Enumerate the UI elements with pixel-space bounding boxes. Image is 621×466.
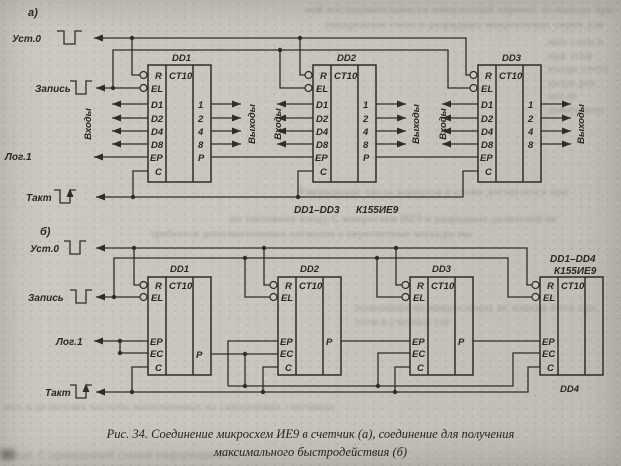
junction-dot xyxy=(375,256,379,260)
pin-label: D4 xyxy=(481,127,494,138)
junction-dot xyxy=(243,256,247,260)
junction-dot xyxy=(130,36,134,40)
inputs-label: Входы xyxy=(273,108,284,140)
part-range-label: DD1–DD4 xyxy=(550,254,596,265)
pin-label: D1 xyxy=(151,100,163,111)
chip-type-label: CT10 xyxy=(334,71,358,82)
pin-label: R xyxy=(547,281,554,292)
pin-label: EP xyxy=(480,153,493,164)
figure-34-schematic: а) xyxy=(0,0,621,466)
outputs-label: Выходы xyxy=(576,104,587,144)
chip-dd4-b: DD1–DD4 К155ИЕ9 DD4 CT10 R EL EP EC C xyxy=(532,254,603,395)
pin-label: R xyxy=(155,71,162,82)
pin-label: D8 xyxy=(481,140,494,151)
inversion-bubble xyxy=(270,282,277,289)
chip-type-label: CT10 xyxy=(169,281,193,292)
pin-label: 1 xyxy=(198,100,203,111)
pin-label: EP xyxy=(150,337,163,348)
diagram-b: б) xyxy=(28,226,603,399)
chip-dd1-b: DD1 CT10 R EL EP EC C P xyxy=(140,264,211,375)
pin-label: 2 xyxy=(197,114,204,125)
caption-line-1: Рис. 34. Соединение микросхем ИЕ9 в счет… xyxy=(0,425,621,443)
pin-label: 2 xyxy=(527,114,534,125)
pin-label: EP xyxy=(412,337,425,348)
pin-label: P xyxy=(458,337,465,348)
diagram-b-label: б) xyxy=(40,226,51,238)
pin-label: C xyxy=(320,167,327,178)
pin-label: C xyxy=(547,363,554,374)
figure-caption: Рис. 34. Соединение микросхем ИЕ9 в счет… xyxy=(0,425,621,461)
caption-line-2: максимального быстродействия (б) xyxy=(0,443,621,461)
pin-label: 1 xyxy=(528,100,533,111)
part-number-label: К155ИЕ9 xyxy=(356,205,399,216)
junction-dot xyxy=(111,86,115,90)
signal-label-log1: Лог.1 xyxy=(55,337,83,348)
inversion-bubble xyxy=(270,294,277,301)
entry-arrowheads-a xyxy=(94,35,105,201)
inversion-bubble xyxy=(140,85,147,92)
pin-label: EL xyxy=(316,84,328,95)
pin-label: D4 xyxy=(151,127,164,138)
junction-dot xyxy=(131,195,135,199)
chip-type-label: CT10 xyxy=(299,281,323,292)
signal-label-set0: Уст.0 xyxy=(12,34,41,45)
inversion-bubble xyxy=(305,72,312,79)
junction-dot xyxy=(298,36,302,40)
junction-dot xyxy=(132,246,136,250)
pin-label: D4 xyxy=(316,127,329,138)
signal-label-set0: Уст.0 xyxy=(30,244,59,255)
input-stubs-dd1-a xyxy=(112,104,148,144)
pin-label: 2 xyxy=(362,114,369,125)
part-number-label: К155ИЕ9 xyxy=(554,266,597,277)
junction-dot xyxy=(296,195,300,199)
chip-dividers xyxy=(331,65,358,182)
junction-dot xyxy=(262,246,266,250)
signal-label-write: Запись xyxy=(35,84,71,95)
pin-label: 8 xyxy=(198,140,204,151)
chip-designator: DD2 xyxy=(337,53,357,64)
pin-label: EC xyxy=(412,349,425,360)
junction-dot xyxy=(278,48,282,52)
pin-label: R xyxy=(417,281,424,292)
inversion-bubble xyxy=(140,294,147,301)
pin-label: EP xyxy=(280,337,293,348)
part-range-label: DD1–DD3 xyxy=(294,205,340,216)
diagram-a: а) xyxy=(4,7,587,216)
inputs-label: Входы xyxy=(83,108,94,140)
pin-label: R xyxy=(320,71,327,82)
pin-label: D8 xyxy=(151,140,164,151)
pin-label: R xyxy=(285,281,292,292)
pin-label: P xyxy=(363,153,370,164)
chip-designator: DD1 xyxy=(170,264,189,275)
pin-label: D2 xyxy=(316,114,329,125)
chip-designator: DD3 xyxy=(502,53,522,64)
pin-label: P xyxy=(196,350,203,361)
pin-label: EP xyxy=(150,153,163,164)
pin-label: 8 xyxy=(528,140,534,151)
net-write-a xyxy=(96,50,470,88)
output-stubs-dd3-a xyxy=(541,104,571,144)
pin-label: EL xyxy=(413,293,425,304)
inversion-bubble xyxy=(532,282,539,289)
inversion-bubble xyxy=(305,85,312,92)
inputs-label: Входы xyxy=(438,108,449,140)
entry-arrowheads-b xyxy=(94,245,105,396)
pin-label: EL xyxy=(543,293,555,304)
pulse-symbols-b xyxy=(64,241,92,398)
pin-label: EC xyxy=(542,349,555,360)
net-clock-a xyxy=(96,171,478,197)
signal-label-log1: Лог.1 xyxy=(4,152,32,163)
inversion-bubble xyxy=(140,282,147,289)
pin-label: C xyxy=(417,363,424,374)
inversion-bubble xyxy=(470,85,477,92)
pin-label: EP xyxy=(315,153,328,164)
chip-dd3-a: DD3 CT10 R EL D1 D2 D4 D8 EP C 1 2 4 8 xyxy=(470,53,541,182)
junction-dot xyxy=(243,384,247,388)
junction-dot xyxy=(243,352,247,356)
pin-label: 1 xyxy=(363,100,368,111)
inversion-bubble xyxy=(532,294,539,301)
pin-label: EC xyxy=(280,349,293,360)
chip-type-label: CT10 xyxy=(431,281,455,292)
signal-label-clock: Такт xyxy=(45,388,71,399)
junction-dot xyxy=(393,390,397,394)
junction-dot xyxy=(118,339,122,343)
junction-dot xyxy=(130,390,134,394)
pin-label: EP xyxy=(542,337,555,348)
junction-dot xyxy=(118,351,122,355)
pin-label: D2 xyxy=(481,114,494,125)
chip-dd2-a: DD2 CT10 R EL D1 D2 D4 D8 EP C 1 2 4 8 P xyxy=(305,53,376,182)
inversion-bubble xyxy=(140,72,147,79)
pin-label: P xyxy=(326,337,333,348)
chip-type-label: CT10 xyxy=(561,281,585,292)
pin-label: 4 xyxy=(527,127,534,138)
pin-label: EL xyxy=(281,293,293,304)
pin-label: C xyxy=(155,167,162,178)
pin-label: C xyxy=(155,363,162,374)
junction-dot xyxy=(261,390,265,394)
inversion-bubble xyxy=(402,282,409,289)
pin-label: D1 xyxy=(316,100,328,111)
pin-label: 8 xyxy=(363,140,369,151)
net-p1-ec2-b xyxy=(211,354,278,386)
chip-dd3-b: DD3 CT10 R EL EP EC C P xyxy=(402,264,473,375)
pin-label: EL xyxy=(151,84,163,95)
junction-dot xyxy=(394,246,398,250)
pin-label: EL xyxy=(151,293,163,304)
chip-designator: DD2 xyxy=(300,264,320,275)
output-stubs-dd1-a xyxy=(211,104,241,144)
inversion-bubble xyxy=(470,72,477,79)
net-ep2-b xyxy=(228,341,278,386)
chip-dd1-a: DD1 CT10 R EL D1 D2 D4 D8 EP C 1 2 4 8 P xyxy=(140,53,211,182)
pin-label: P xyxy=(198,153,205,164)
pin-label: 4 xyxy=(362,127,369,138)
pin-label: C xyxy=(285,363,292,374)
chip-dividers xyxy=(496,65,523,182)
chip-dividers xyxy=(166,65,193,182)
pin-label: EL xyxy=(481,84,493,95)
inversion-bubble xyxy=(402,294,409,301)
net-set0-a xyxy=(94,38,470,75)
output-stubs-dd2-a xyxy=(376,104,406,144)
chip-type-label: CT10 xyxy=(499,71,523,82)
signal-label-write: Запись xyxy=(28,293,64,304)
chip-designator: DD4 xyxy=(560,384,580,395)
pin-label: C xyxy=(485,167,492,178)
net-carry-bus-b xyxy=(228,353,540,386)
chip-type-label: CT10 xyxy=(169,71,193,82)
junction-dot xyxy=(376,384,380,388)
signal-label-clock: Такт xyxy=(26,193,52,204)
junction-dot xyxy=(112,295,116,299)
pin-label: R xyxy=(485,71,492,82)
chip-designator: DD3 xyxy=(432,264,452,275)
pin-label: 4 xyxy=(197,127,204,138)
outputs-label: Выходы xyxy=(411,104,422,144)
pin-label: R xyxy=(155,281,162,292)
pin-label: D8 xyxy=(316,140,329,151)
chip-dd2-b: DD2 CT10 R EL EP EC C P xyxy=(270,264,341,375)
diagram-a-label: а) xyxy=(28,7,38,19)
pin-label: D2 xyxy=(151,114,164,125)
chip-designator: DD1 xyxy=(172,53,191,64)
pin-label: D1 xyxy=(481,100,493,111)
outputs-label: Выходы xyxy=(247,104,258,144)
pin-label: EC xyxy=(150,349,163,360)
